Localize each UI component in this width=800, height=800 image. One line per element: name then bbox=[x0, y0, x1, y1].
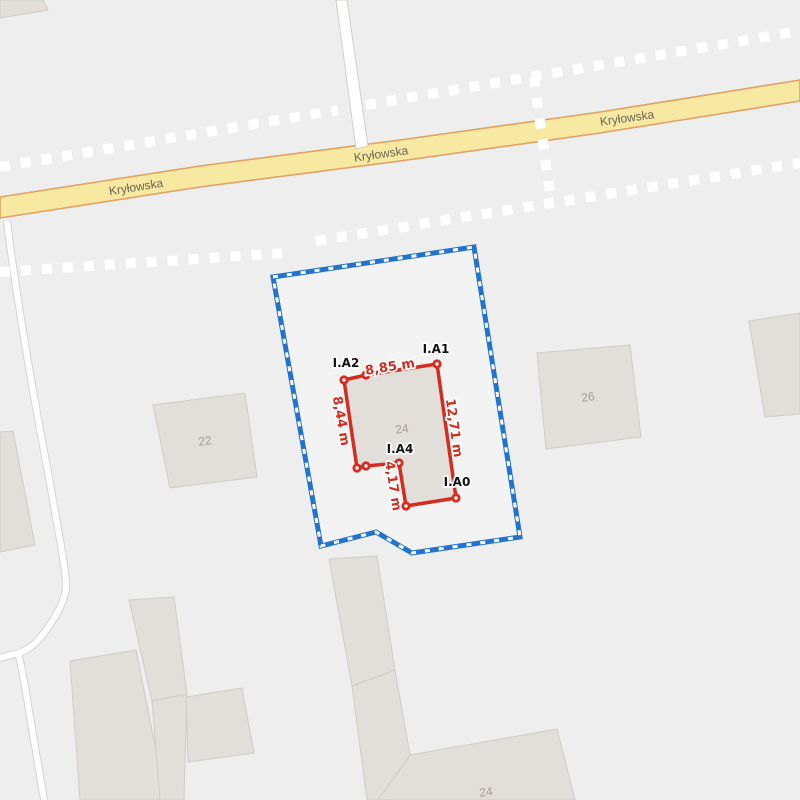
point-label-ia1: I.A1 bbox=[423, 342, 450, 356]
vertex-mid-left-hole bbox=[364, 464, 367, 467]
point-label-ia4: I.A4 bbox=[387, 442, 414, 456]
building-label-26: 26 bbox=[580, 389, 595, 405]
vertex-ia0-hole bbox=[454, 496, 457, 499]
building-bottom-left-d bbox=[186, 688, 254, 762]
point-label-ia0: I.A0 bbox=[444, 475, 471, 489]
vertex-bottom-hole bbox=[404, 504, 407, 507]
vertex-left-hole bbox=[355, 466, 358, 469]
vertex-ia1-hole bbox=[435, 362, 438, 365]
map-canvas[interactable]: Kryłowska Kryłowska Kryłowska 22 24 26 2… bbox=[0, 0, 800, 800]
vertex-ia4-hole bbox=[397, 461, 400, 464]
building-label-24: 24 bbox=[394, 421, 409, 437]
point-label-ia2: I.A2 bbox=[333, 356, 360, 370]
vertex-ia2-hole bbox=[342, 378, 345, 381]
building-label-22: 22 bbox=[197, 433, 212, 449]
building-label-24-bottom: 24 bbox=[478, 784, 493, 800]
